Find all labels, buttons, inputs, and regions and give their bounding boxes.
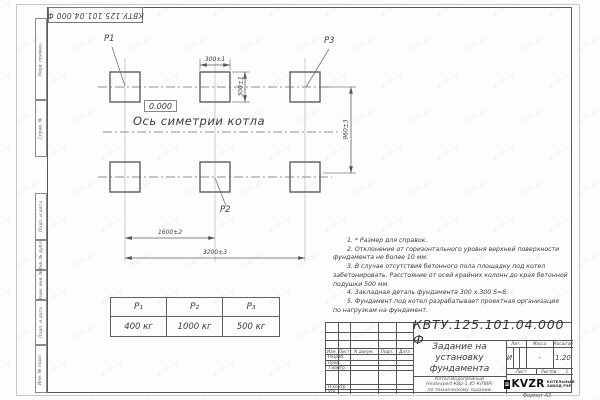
company-logo: ≡ KVZR КОТЕЛЬНЫЙ ЗАВОД РЭП: [506, 374, 573, 394]
note-line: фундамента не более 10 мм.: [333, 254, 570, 263]
tb-scale-header: Масштаб: [553, 340, 573, 347]
load-table-header: P₁: [111, 298, 167, 317]
doc-number: КВТУ.125.101.04.000 Ф: [413, 323, 573, 340]
load-table-header: P₂: [167, 298, 223, 317]
drawing-title: Задание на установку фундамента: [413, 340, 506, 376]
load-table-header: P₃: [223, 298, 279, 317]
tb-col-podp: Подп.: [378, 348, 396, 354]
elevation-mark: 0.000: [144, 100, 177, 112]
tb-mass-header: Масса: [526, 340, 553, 347]
note-line: подушки 500 мм.: [333, 281, 570, 290]
pad-label-p2: P2: [220, 205, 231, 215]
tb-row-tkontr: Т.контр.: [326, 365, 350, 370]
tb-lit-header: Лит.: [506, 340, 526, 347]
note-line: забетонировать. Расстояние от осей крайн…: [333, 272, 570, 281]
tb-col-data: Дата: [396, 348, 413, 354]
note-line: 4. Закладная деталь фундамента 300 x 300…: [333, 289, 570, 298]
tb-scale-value: 1:20: [553, 347, 573, 368]
title-block: КВТУ.125.101.04.000 Ф Изм. Лист N докум.…: [325, 322, 572, 393]
drawing-sheet: KVZR.RUKVZR.RUKVZR.RUKVZR.RUKVZR.RUKVZR.…: [0, 0, 600, 400]
kvzr-logo-caption: КОТЕЛЬНЫЙ ЗАВОД РЭП: [547, 380, 575, 389]
dim-pad-height: 300±1: [238, 69, 245, 105]
kvzr-logo-text: KVZR: [512, 378, 545, 390]
drawing-subtitle: Котел Водогрейный Heatexpert-КВр-1,45-К(…: [413, 376, 506, 394]
dim-col-spacing: 1600±2: [150, 229, 190, 236]
load-table-value: 400 кг: [111, 317, 167, 336]
boiler-symmetry-axis-label: Ось симетрии котла: [133, 114, 265, 128]
note-line: по нагрузкам на фундамент.: [333, 307, 570, 316]
note-line: 5. Фундамент под котел разрабатывает про…: [333, 298, 570, 307]
load-table-value: 500 кг: [223, 317, 279, 336]
load-table: P₁ P₂ P₃ 400 кг 1000 кг 500 кг: [110, 297, 280, 337]
load-table-value: 1000 кг: [167, 317, 223, 336]
dim-pad-width: 300±1: [197, 56, 233, 63]
technical-notes: 1. * Размер для справок. 2. Отклонение о…: [333, 237, 570, 315]
dim-row-spacing: 960±3: [343, 112, 350, 148]
tb-row-utv: Утв.: [326, 389, 350, 394]
pad-label-p3: P3: [324, 36, 335, 46]
tb-mass-value: -: [526, 347, 553, 368]
tb-col-doc: N докум.: [350, 348, 378, 354]
kvzr-logo-icon: ≡: [504, 380, 509, 389]
pad-label-p1: P1: [104, 34, 115, 44]
note-line: 1. * Размер для справок.: [333, 237, 570, 246]
tb-lit-value: И: [506, 347, 513, 368]
dim-overall: 3200±3: [192, 249, 238, 256]
format-note: Формат А3: [502, 393, 572, 399]
note-line: 3. В случае отсутствия бетонного пола пл…: [333, 263, 570, 272]
